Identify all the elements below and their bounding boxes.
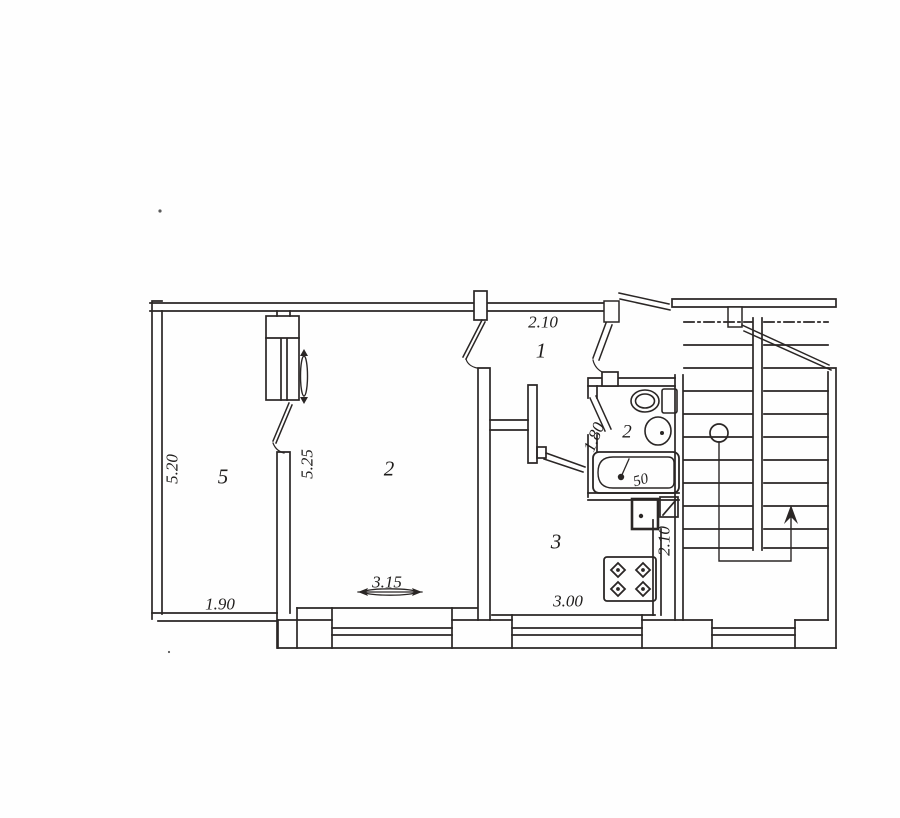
door-hall-room2: [463, 320, 485, 368]
built-in-closet: [266, 316, 299, 400]
floor-plan-page: 5.20 5 1.90 5.25 2 3.15 2.10 1 1.80 2 50…: [0, 0, 900, 818]
dim-room5-width: 1.90: [205, 596, 235, 613]
dim-kitchen-width: 3.00: [553, 593, 583, 610]
hall-closet-walls: [490, 385, 546, 463]
dim-room5-height: 5.20: [164, 454, 181, 484]
kitchen-number: 3: [551, 532, 562, 553]
entry-door: [619, 293, 670, 310]
window-room2: [332, 628, 452, 635]
hall-number: 1: [536, 341, 547, 362]
dim-room2-width: 3.15: [372, 574, 402, 591]
room2-number: 2: [384, 459, 395, 480]
door-room5-room2: [273, 403, 292, 453]
wall-room5-room2: [277, 311, 290, 613]
bottom-wall-windows: [152, 608, 836, 648]
closet-vent-icon: [300, 349, 308, 404]
window-kitchen: [512, 628, 642, 635]
room5-number: 5: [218, 467, 229, 488]
washbasin-icon: [645, 417, 671, 445]
toilet-icon: [631, 389, 677, 413]
landing-door: [728, 307, 831, 370]
window-staircase: [712, 628, 795, 635]
stove-icon: [604, 557, 656, 601]
outer-walls: [150, 299, 836, 648]
door-corridor-bath: [544, 453, 585, 472]
scan-artifacts: [158, 209, 170, 653]
floor-plan-drawing: [0, 0, 900, 818]
dim-hall-width: 2.10: [528, 314, 558, 331]
water-heater-box: [632, 499, 658, 529]
room5-bottom-wall: [152, 613, 277, 621]
dim-kitchen-depth: 2.10: [656, 526, 673, 556]
stair-column-circle: [710, 424, 728, 442]
dim-room2-height: 5.25: [299, 449, 316, 479]
bathroom-number: 2: [622, 423, 632, 442]
